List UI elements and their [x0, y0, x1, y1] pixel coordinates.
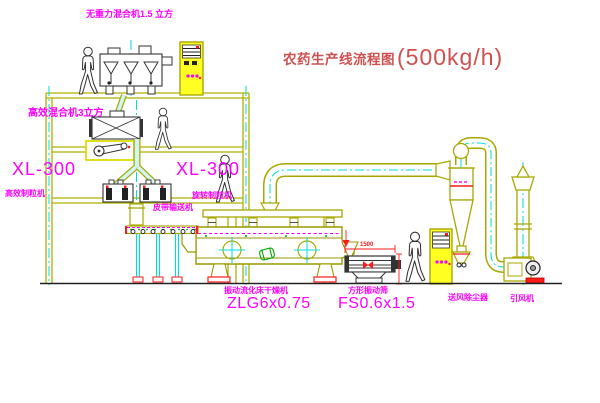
worker-floor2 — [155, 108, 171, 149]
square-vibrating-sieve — [343, 230, 403, 284]
title-capacity: (500kg/h) — [397, 44, 503, 71]
label-dust-collector: 送风除尘器 — [448, 294, 488, 302]
induced-draft-fan — [504, 166, 544, 283]
control-cabinet-ground — [430, 229, 452, 284]
granulator-left — [103, 180, 133, 202]
label-sieve-name: 方形振动筛 — [348, 287, 388, 295]
diagram-title: 农药生产线流程图 (500kg/h) — [283, 44, 503, 71]
stack-cap — [512, 177, 534, 190]
fan-base — [526, 278, 544, 283]
label-top-mixer: 无重力混合机1.5 立方 — [86, 10, 173, 19]
flow-diagram: 农药生产线流程图 (500kg/h) 无重力混合机1.5 立方 高效混合机3立方… — [0, 0, 600, 403]
worker-ground — [406, 232, 425, 281]
dryer-mounts — [208, 264, 336, 282]
label-belt-conveyor: 皮带输送机 — [153, 204, 193, 212]
mixer-drive-unit — [86, 141, 134, 160]
label-granulator-right-name: 旋转制粒机 — [192, 192, 232, 200]
label-dryer-model: ZLG6x0.75 — [227, 296, 311, 312]
label-sieve-model: FS0.6x1.5 — [338, 296, 415, 312]
title-text: 农药生产线流程图 — [283, 48, 395, 68]
worker-roof — [79, 47, 97, 94]
dimension-1500: 1500 — [360, 242, 373, 248]
label-granulator-left-name: 高效制粒机 — [5, 190, 45, 198]
exhaust-duct — [261, 161, 450, 214]
granulator-discharge-pipe — [128, 204, 145, 225]
label-fan: 引风机 — [510, 295, 534, 303]
pipe-elbow-flange — [454, 144, 469, 159]
label-dryer-name: 振动流化床干燥机 — [224, 287, 288, 295]
fluid-bed-dryer — [182, 210, 358, 282]
label-granulator-right-model: XL-300 — [176, 160, 240, 178]
granulator-right — [140, 180, 171, 202]
control-cabinet-roof — [180, 42, 203, 95]
label-floor-mixer: 高效混合机3立方 — [28, 109, 104, 119]
label-granulator-left-model: XL-300 — [12, 160, 76, 178]
